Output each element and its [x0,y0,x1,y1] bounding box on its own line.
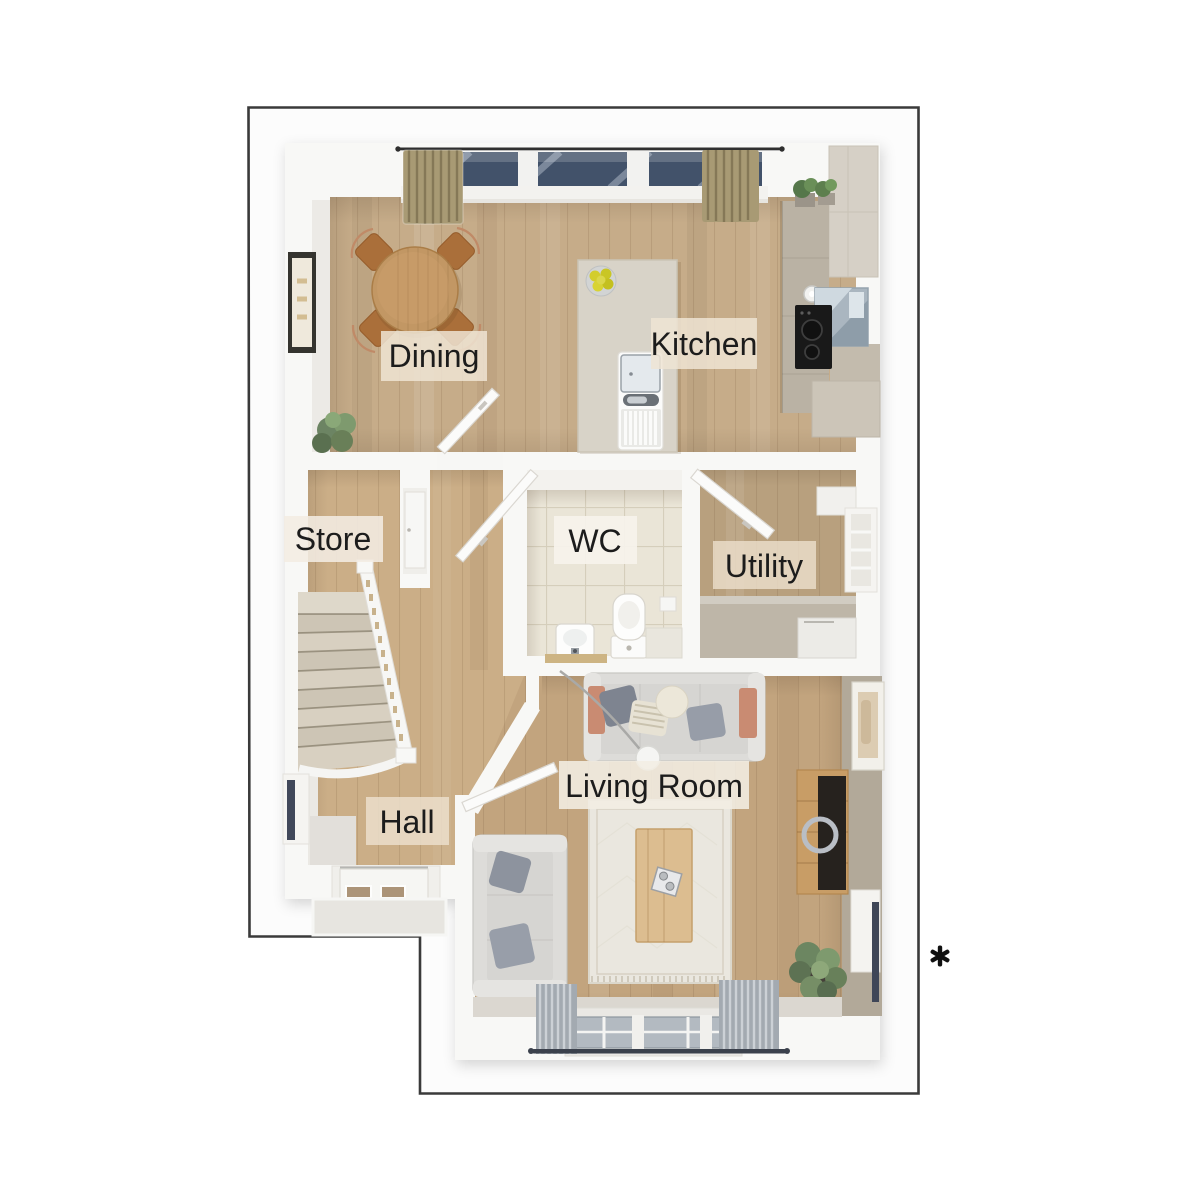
svg-text:Dining: Dining [389,338,480,374]
svg-text:Store: Store [295,521,371,557]
svg-text:Kitchen: Kitchen [651,326,758,362]
svg-text:WC: WC [568,523,621,559]
svg-text:Living Room: Living Room [565,768,743,804]
svg-text:Utility: Utility [725,548,803,584]
svg-text:Hall: Hall [379,804,434,840]
